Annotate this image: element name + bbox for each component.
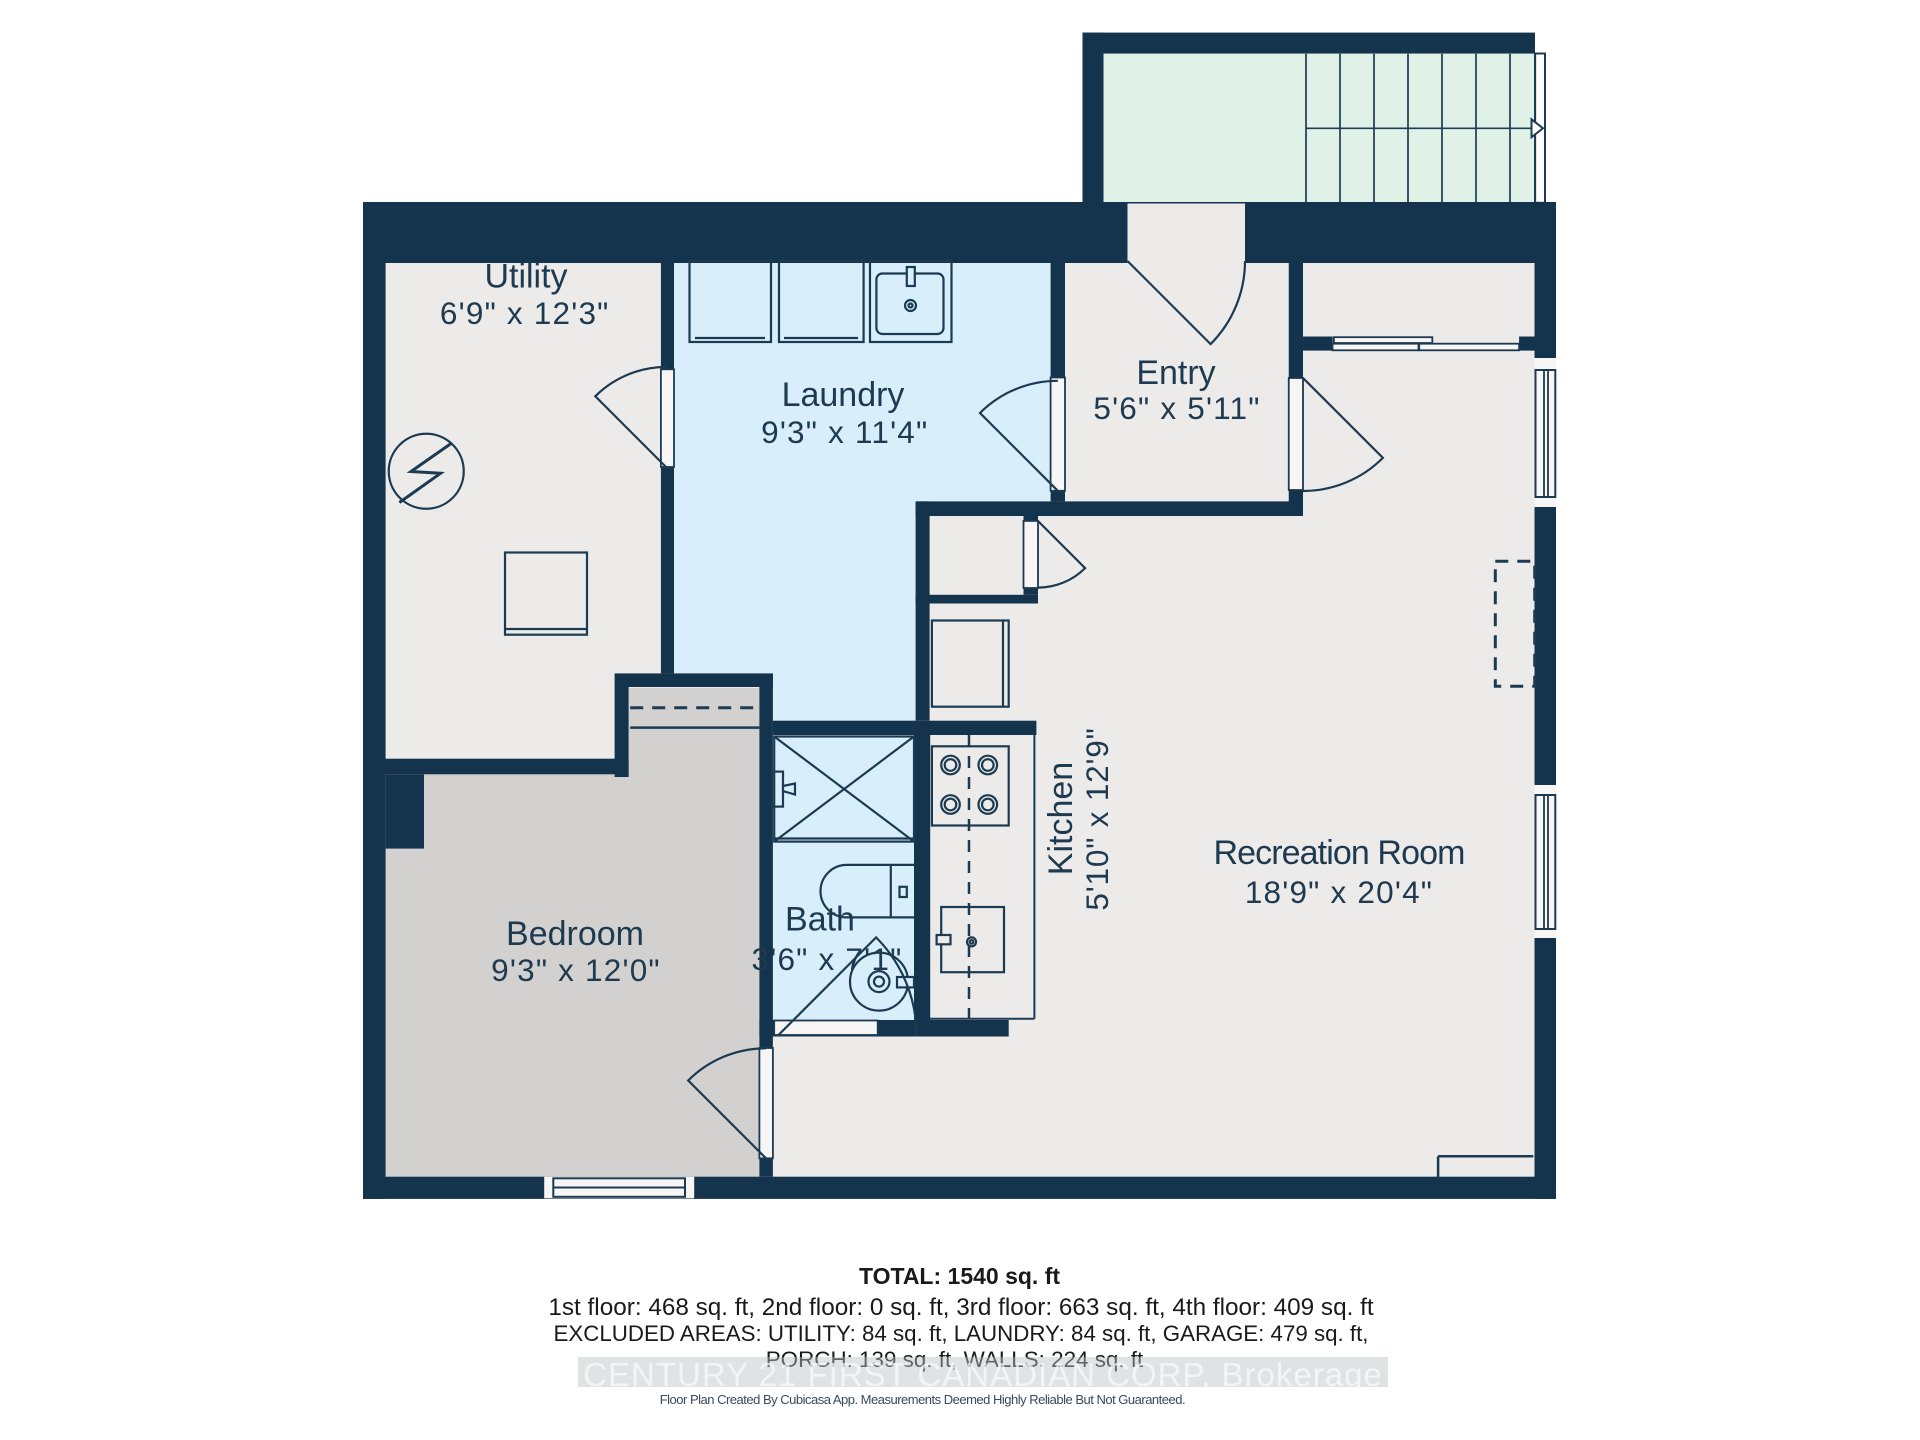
svg-text:Floor Plan Created By Cubicasa: Floor Plan Created By Cubicasa App. Meas…: [660, 1392, 1185, 1407]
svg-text:Laundry: Laundry: [782, 376, 905, 414]
svg-text:6'9" x 12'3": 6'9" x 12'3": [440, 295, 610, 331]
svg-text:Recreation Room: Recreation Room: [1213, 834, 1464, 872]
svg-text:1st floor: 468 sq. ft, 2nd flo: 1st floor: 468 sq. ft, 2nd floor: 0 sq. …: [548, 1294, 1373, 1321]
svg-text:EXCLUDED AREAS: UTILITY: 84 sq: EXCLUDED AREAS: UTILITY: 84 sq. ft, LAUN…: [554, 1321, 1369, 1346]
svg-text:18'9" x 20'4": 18'9" x 20'4": [1245, 874, 1433, 910]
svg-text:9'3" x 12'0": 9'3" x 12'0": [491, 952, 661, 988]
svg-text:5'10" x 12'9": 5'10" x 12'9": [1079, 727, 1115, 910]
svg-text:3'6" x 7'1": 3'6" x 7'1": [752, 941, 903, 977]
svg-text:9'3" x 11'4": 9'3" x 11'4": [761, 414, 928, 450]
svg-text:Entry: Entry: [1136, 354, 1215, 392]
svg-text:TOTAL: 1540 sq. ft: TOTAL: 1540 sq. ft: [859, 1263, 1060, 1289]
svg-text:5'6" x 5'11": 5'6" x 5'11": [1093, 390, 1260, 426]
svg-text:Utility: Utility: [484, 258, 567, 296]
svg-text:CENTURY 21 FIRST CANADIAN CORP: CENTURY 21 FIRST CANADIAN CORP, Brokerag…: [583, 1356, 1383, 1393]
svg-text:Bath: Bath: [785, 901, 855, 939]
svg-text:Bedroom: Bedroom: [506, 915, 644, 953]
svg-text:Kitchen: Kitchen: [1042, 762, 1080, 875]
